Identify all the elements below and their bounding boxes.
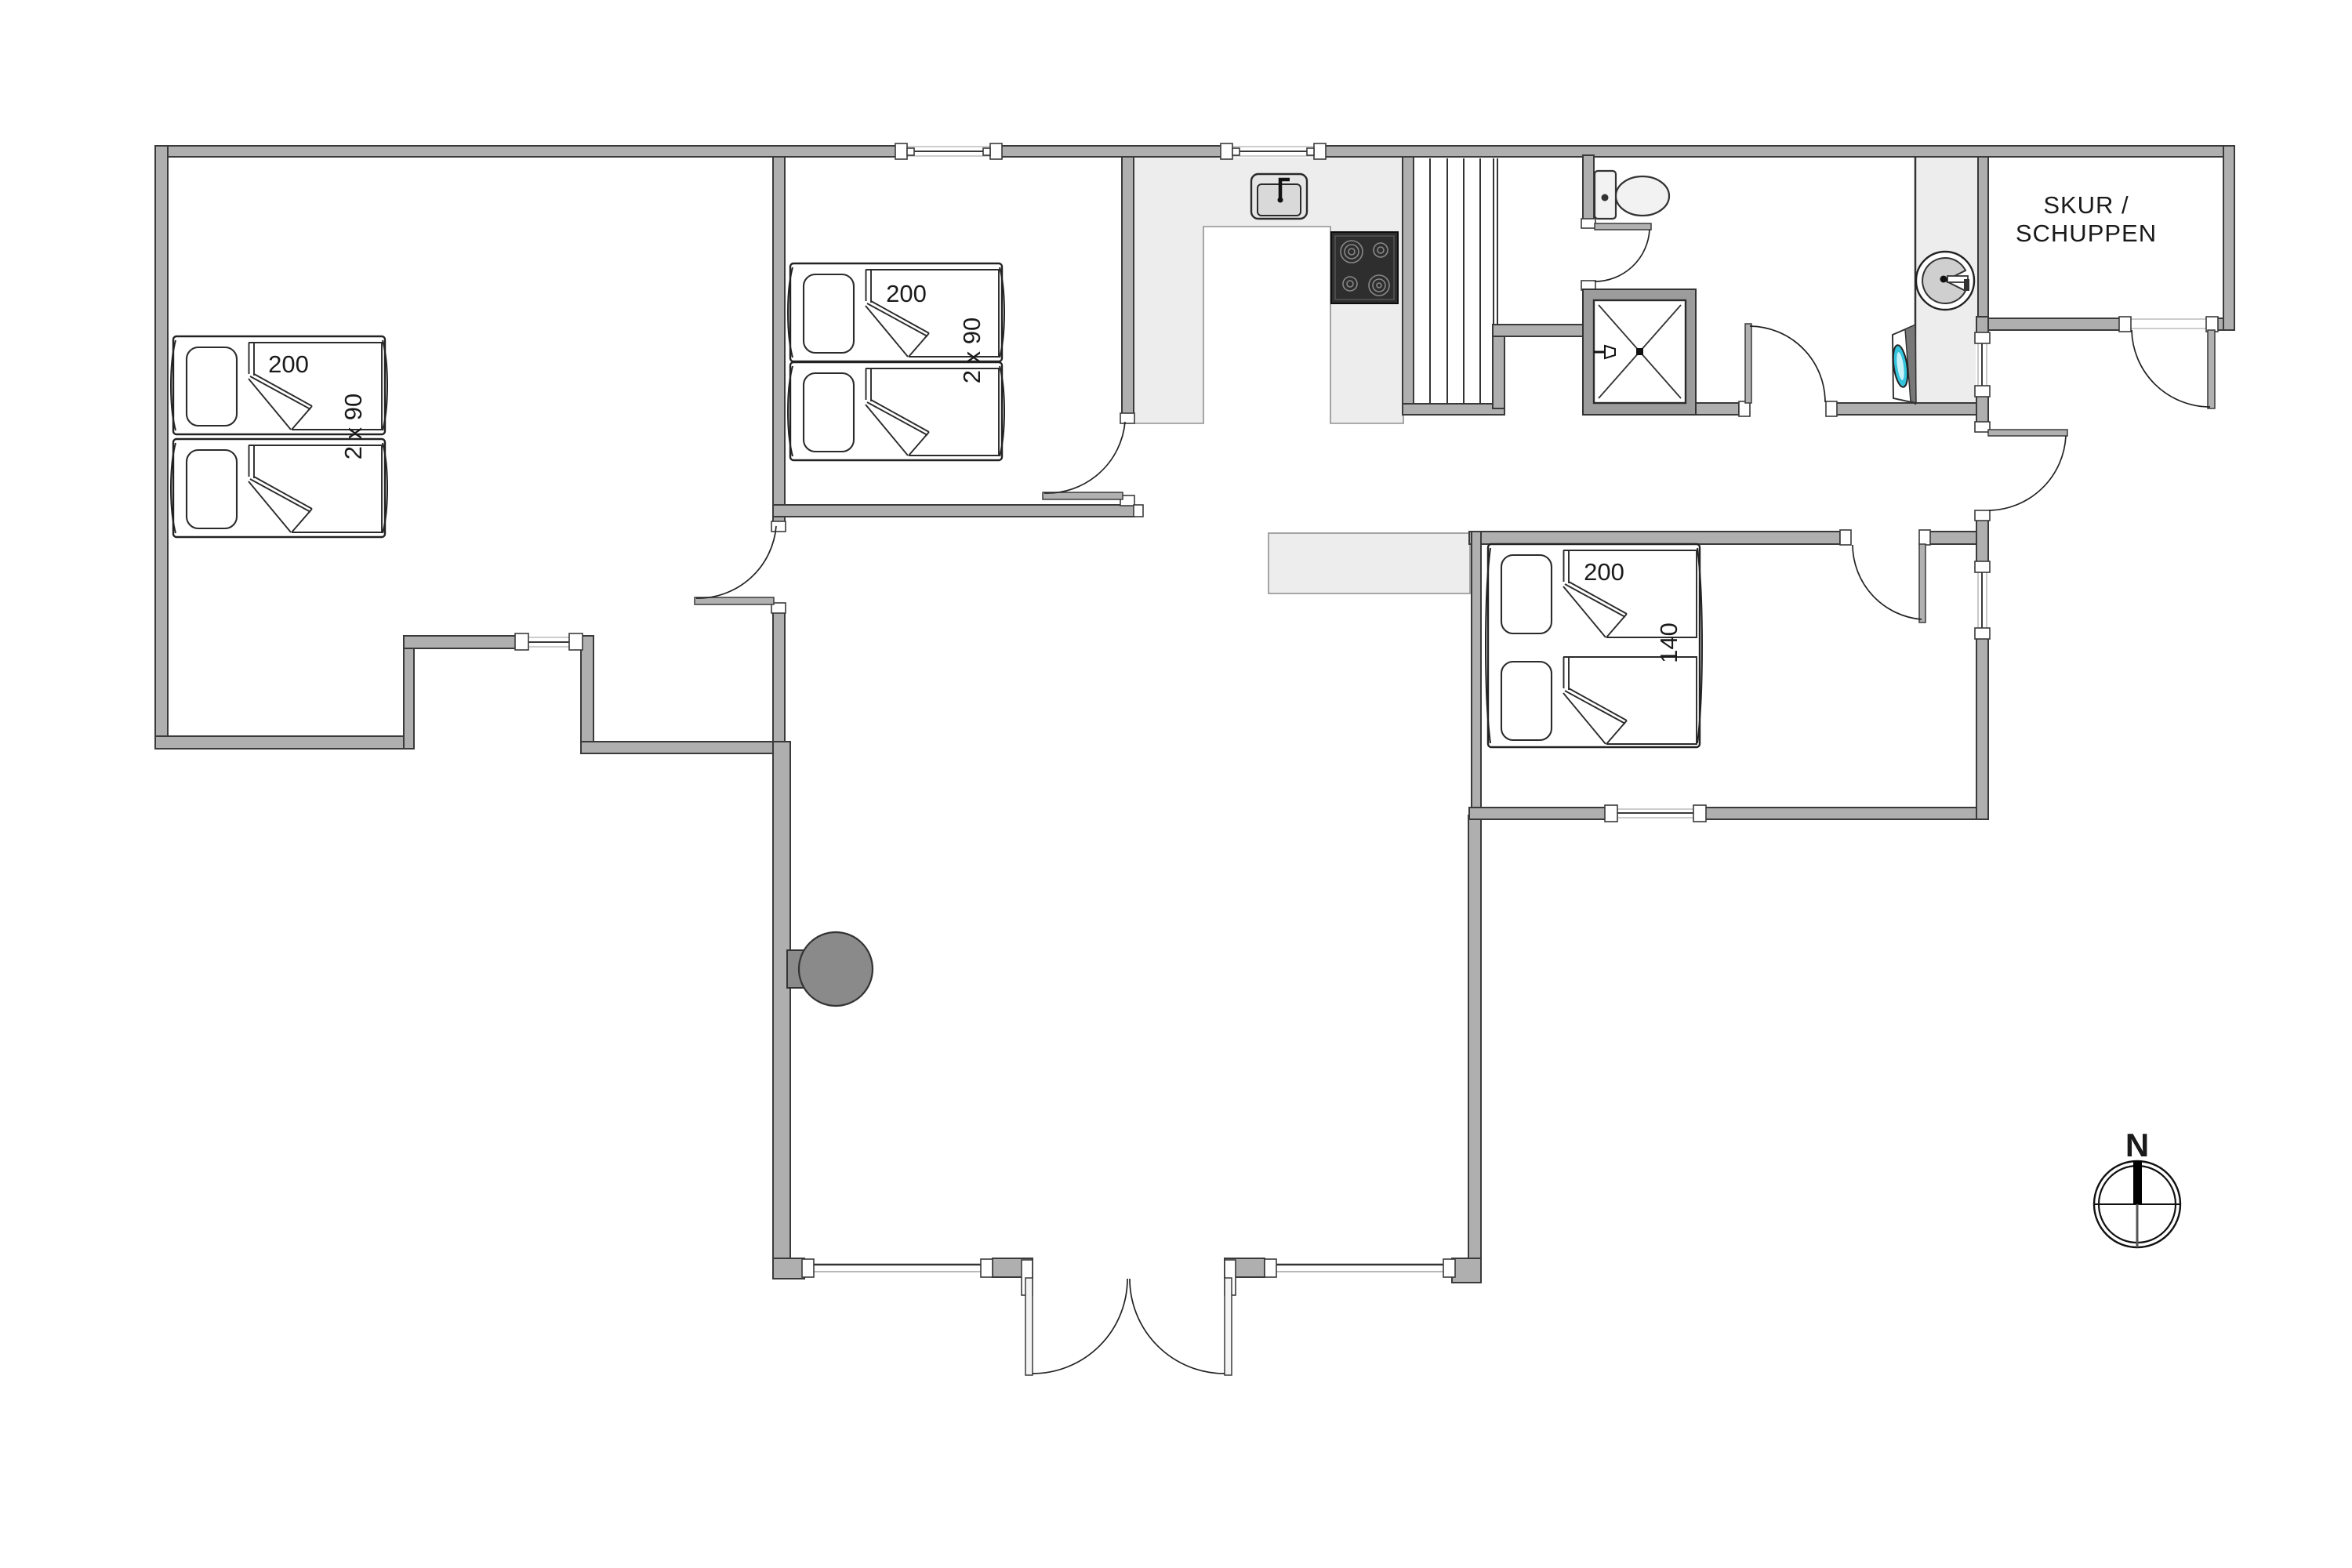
svg-text:200: 200 (1584, 558, 1624, 586)
svg-text:200: 200 (268, 350, 309, 378)
svg-text:2 x 90: 2 x 90 (339, 394, 367, 459)
svg-text:N: N (2125, 1127, 2149, 1163)
svg-text:SCHUPPEN: SCHUPPEN (2016, 220, 2157, 247)
svg-text:200: 200 (886, 280, 927, 307)
svg-text:140: 140 (1655, 622, 1682, 663)
svg-text:SKUR /: SKUR / (2043, 191, 2129, 219)
svg-text:2 x 90: 2 x 90 (958, 318, 985, 383)
